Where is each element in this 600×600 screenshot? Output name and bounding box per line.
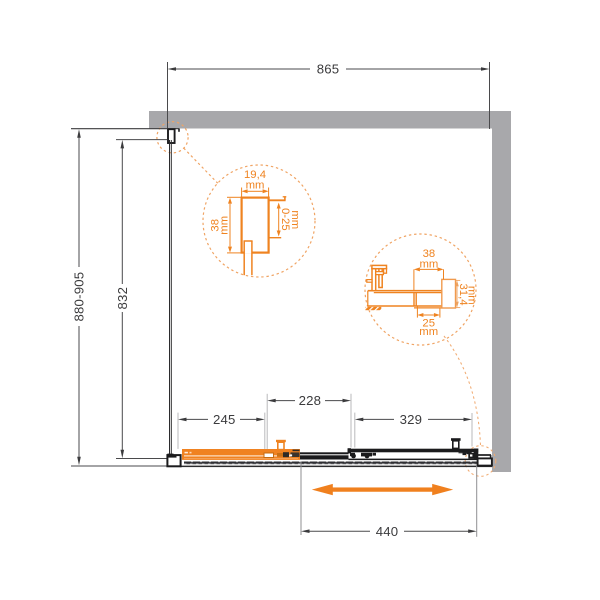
svg-text:440: 440 (376, 524, 399, 539)
svg-text:mm: mm (289, 210, 301, 229)
svg-text:865: 865 (317, 62, 340, 77)
svg-text:228: 228 (299, 393, 322, 408)
svg-text:mm: mm (419, 258, 438, 270)
svg-text:245: 245 (213, 412, 236, 427)
svg-text:mm: mm (465, 286, 477, 305)
svg-text:329: 329 (400, 412, 423, 427)
svg-text:832: 832 (115, 287, 130, 310)
svg-text:mm: mm (219, 216, 231, 235)
svg-text:mm: mm (246, 179, 265, 191)
svg-text:880-905: 880-905 (72, 272, 87, 322)
svg-text:mm: mm (419, 326, 438, 338)
